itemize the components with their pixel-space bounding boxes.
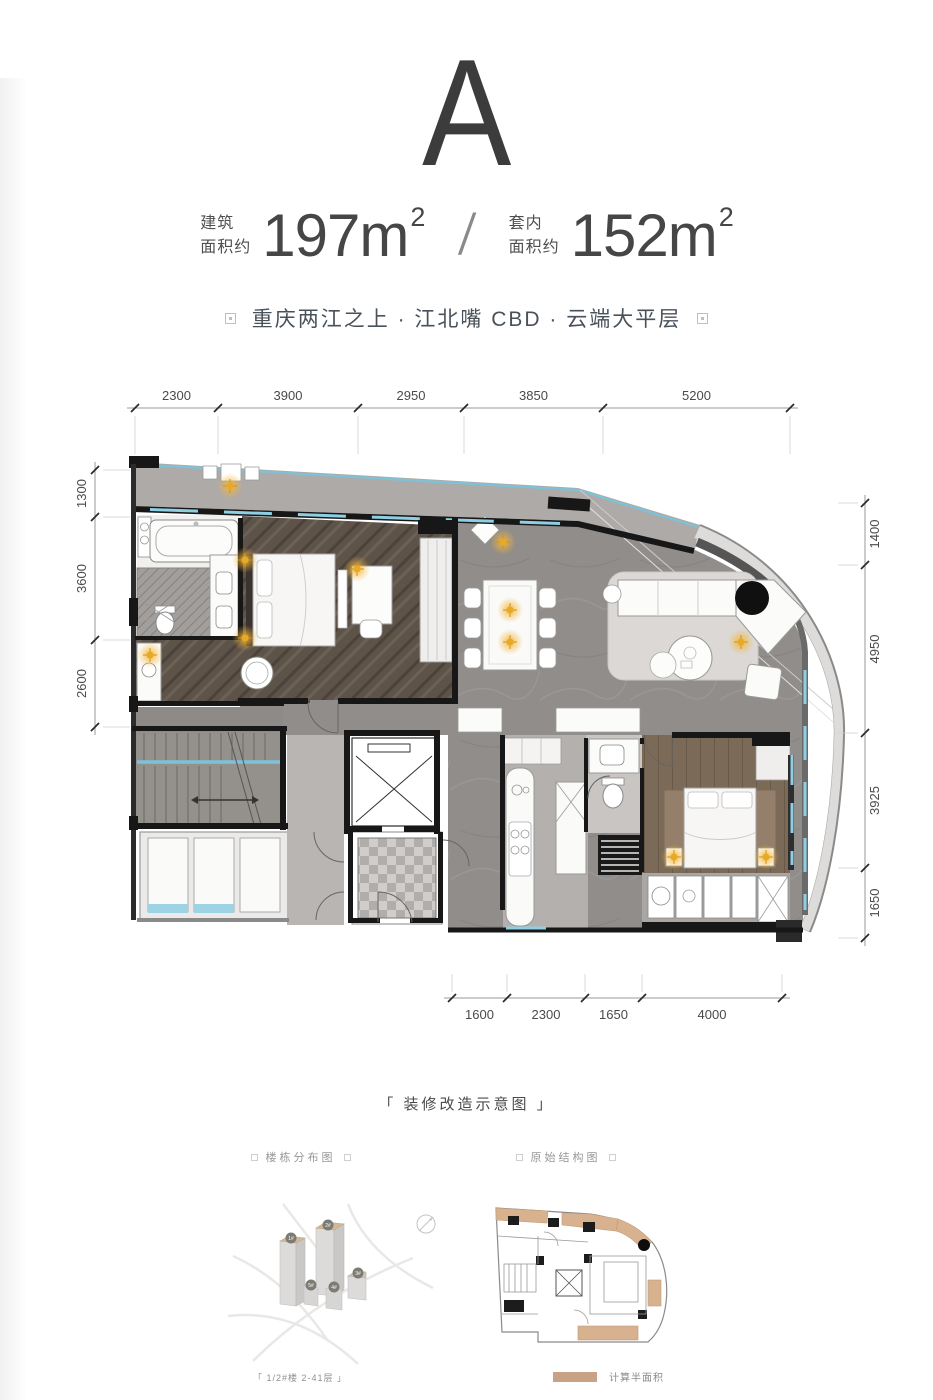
original-structure-diagram [478,1192,693,1364]
dimension-label: 1400 [867,520,882,549]
plan-letter-text: A [422,34,511,194]
legend-label: 计算半面积 [609,1369,664,1384]
sofa [618,580,736,616]
dining-chair [539,618,556,638]
desk-chair [360,620,382,638]
mini-left-caption: 「 1/2#楼 2-41层 」 [215,1371,385,1384]
dining-chair [464,618,481,638]
dining-chair [539,588,556,608]
deco-square-icon [697,313,708,324]
towers: 1# 2# 3# 4# 5# [280,1220,366,1311]
half-area-legend: 计算半面积 [553,1369,664,1384]
dimension-label: 4000 [698,1007,727,1022]
build-area-group: 建筑 面积约 197m2 [200,206,424,266]
dimension-label: 3850 [519,388,548,403]
tagline: 重庆两江之上 · 江北嘴 CBD · 云端大平层 [0,303,933,333]
svg-text:3#: 3# [355,1271,361,1277]
toilet [156,612,174,634]
dimension-label: 1650 [867,889,882,918]
legend-color-swatch [553,1372,597,1382]
area-divider: / [460,204,472,269]
compass-icon [417,1215,435,1233]
entry-corridor-floor [287,735,344,925]
svg-text:2#: 2# [325,1223,331,1229]
deco-square-icon [251,1154,258,1161]
floorplan-page: A 建筑 面积约 197m2 / 套内 面积约 152m2 重庆两江之上 · 江… [0,0,933,1400]
kitchen-island [556,782,586,874]
dimension-label: 3925 [867,786,882,815]
dimension-label: 2600 [74,669,89,698]
plan-caption: 「 装修改造示意图 」 [0,1093,933,1114]
dining-chair [539,648,556,668]
deco-square-icon [225,313,236,324]
area-info-row: 建筑 面积约 197m2 / 套内 面积约 152m2 [0,206,933,266]
dimension-label: 1650 [599,1007,628,1022]
dining-chair [464,648,481,668]
floor-plan-drawing: 房天下 fang.com 房天下 fang.com [0,370,933,1070]
lounge-stool [744,664,782,700]
toilet [603,784,623,808]
dining-table [483,580,537,670]
wardrobe [420,538,452,662]
coffee-table [668,636,712,680]
svg-text:5#: 5# [308,1283,314,1289]
dimension-label: 2300 [162,388,191,403]
dimension-label: 2300 [532,1007,561,1022]
build-area-label: 建筑 面积约 [200,212,251,260]
page-title: A [0,34,933,194]
inner-area-label: 套内 面积约 [509,212,560,260]
svg-text:1#: 1# [288,1236,294,1242]
deco-square-icon [344,1154,351,1161]
dimension-label: 3900 [274,388,303,403]
inner-area-group: 套内 面积约 152m2 [509,206,733,266]
dimension-label: 1600 [465,1007,494,1022]
mini-left-title: 楼栋分布图 [218,1149,383,1165]
dimension-label: 1300 [74,479,89,508]
inner-area-value: 152m2 [571,206,733,266]
structure-column [638,1239,650,1251]
building-distribution-diagram: 1# 2# 3# 4# 5# [228,1196,453,1366]
dining-chair [464,588,481,608]
svg-text:4#: 4# [331,1285,337,1291]
dimension-label: 4950 [867,635,882,664]
dimension-label: 3600 [74,564,89,593]
build-area-value: 197m2 [262,206,424,266]
dimension-label: 2950 [397,388,426,403]
deco-square-icon [516,1154,523,1161]
deco-square-icon [609,1154,616,1161]
column [735,581,769,615]
mini-right-title: 原始结构图 [483,1149,648,1165]
cooktop [509,822,531,876]
dimension-label: 5200 [682,388,711,403]
